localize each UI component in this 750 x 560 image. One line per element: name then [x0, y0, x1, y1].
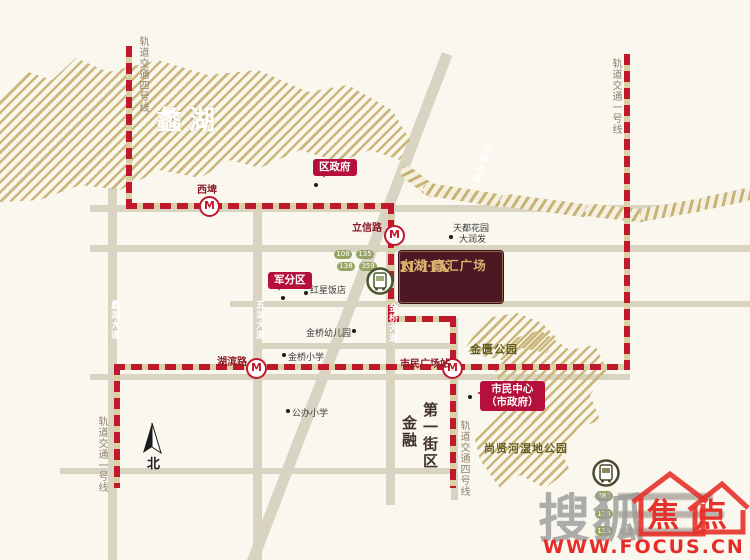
metro-line4-segment — [450, 316, 456, 488]
watermark-focus-text: 焦点 — [647, 496, 743, 534]
metro-line1-segment — [114, 364, 120, 488]
poi-jinqiao-kindergarten: 金桥幼儿园 — [306, 326, 351, 339]
road-label-lihu-avenue: 蠡湖大道 — [109, 300, 118, 340]
bus-route-pill: 108 — [334, 250, 352, 259]
metro-line1-segment — [114, 364, 630, 370]
park-label-shangxianhe: 尚贤河湿地公园 — [484, 440, 568, 456]
lake-label: 蠡湖 — [156, 100, 222, 137]
poi-dot — [352, 329, 356, 333]
bus-route-pill: 135 — [356, 250, 374, 259]
poi-dot — [286, 409, 290, 413]
station-label-hubin: 湖滨路 — [217, 353, 247, 368]
location-map: 蠡湖大道 五湖大道 金桥大道 立信大道 蠡湖 金匮公园 尚贤河湿地公园 轨道交通… — [0, 0, 750, 560]
river-segment — [699, 187, 750, 211]
finance-district-label-left: 金融 — [401, 415, 416, 449]
poi-dot — [304, 291, 308, 295]
river-segment — [499, 193, 593, 218]
poi-jinqiao-primary: 金桥小学 — [288, 350, 324, 363]
metro-station-icon-hubin: M — [246, 358, 267, 379]
bus-stop-icon — [366, 267, 394, 295]
station-label-lixin: 立信路 — [352, 219, 382, 234]
station-label-shimin-guangchang: 市民广场站 — [400, 355, 450, 370]
poi-dot — [282, 353, 286, 357]
park-label-jinkui: 金匮公园 — [470, 341, 518, 357]
river-segment — [639, 197, 708, 222]
metro-line4-segment — [126, 46, 132, 209]
poi-rt-mart: 大润发 — [459, 232, 486, 245]
metro-line1-label-southwest: 轨道交通一号线 — [96, 416, 106, 493]
metro-line1-segment — [624, 54, 630, 370]
road-label-wuhu-avenue: 五湖大道 — [254, 300, 263, 340]
bus-route-pill: 138 — [337, 262, 355, 271]
poi-dot — [281, 296, 285, 300]
poi-dot — [449, 235, 453, 239]
road-label-lixin-avenue: 立信大道 — [469, 143, 492, 184]
project-name: 太湖·嘉汇广场 — [400, 255, 487, 274]
poi-hongxing-hotel: 红星饭店 — [310, 283, 346, 296]
compass-north-arrow — [139, 421, 165, 457]
project-billboard: II'IIX 太湖·嘉汇广场 — [399, 251, 503, 303]
legend-bus-icon — [592, 459, 620, 487]
callout-district-government: 区政府 — [313, 159, 357, 176]
metro-station-icon-xipi: M — [199, 196, 220, 217]
poi-public-primary: 公办小学 — [292, 406, 328, 419]
road-label-jinqiao-avenue: 金桥大道 — [387, 303, 396, 343]
metro-line4-label-north: 轨道交通四号线 — [137, 36, 147, 113]
metro-line4-label-south: 轨道交通四号线 — [458, 420, 468, 497]
civic-center-line2: （市政府） — [486, 396, 539, 409]
road-jinqiao-street — [262, 343, 458, 349]
metro-line4-segment — [126, 203, 394, 209]
callout-junfenqu: 军分区 — [268, 272, 312, 289]
finance-district-label-right: 第一街区 — [422, 402, 437, 470]
city-block — [391, 381, 393, 383]
watermark-url: WWW.FOCUS.CN — [543, 536, 745, 558]
road-wuhu-avenue — [253, 210, 262, 560]
station-label-xipi: 西埤 — [197, 181, 217, 196]
metro-station-icon-lixin: M — [384, 225, 405, 246]
callout-civic-center: 市民中心 （市政府） — [480, 381, 545, 411]
poi-dot — [314, 183, 318, 187]
metro-line1-label-northeast: 轨道交通一号线 — [610, 58, 620, 135]
metro-line4-segment — [388, 316, 456, 322]
civic-center-line1: 市民中心 — [486, 383, 539, 396]
compass-north-label: 北 — [147, 453, 160, 472]
